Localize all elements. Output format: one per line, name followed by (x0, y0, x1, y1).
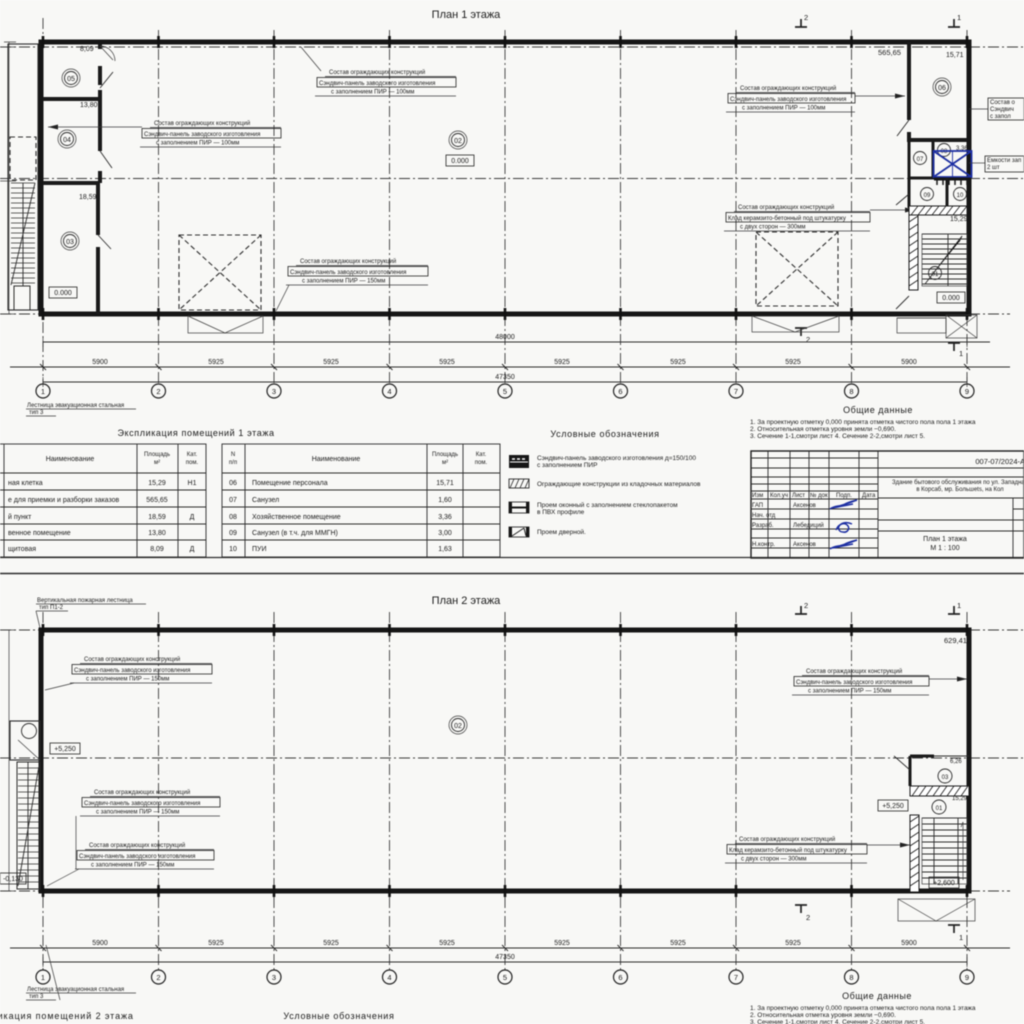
svg-text:Сэндвич-панель заводского изго: Сэндвич-панель заводского изготовления (74, 668, 190, 674)
svg-text:е для приемки и разборки заказ: е для приемки и разборки заказов (8, 496, 120, 504)
svg-text:+5,250: +5,250 (882, 803, 904, 810)
svg-text:N: N (231, 452, 235, 458)
svg-text:Состав ограждающих конструкций: Состав ограждающих конструкций (300, 258, 396, 265)
svg-text:18,59: 18,59 (148, 514, 166, 521)
svg-text:с заполнением ПИР — 150мм: с заполнением ПИР — 150мм (96, 810, 179, 816)
svg-text:5925: 5925 (439, 359, 455, 366)
svg-text:1: 1 (41, 387, 45, 396)
svg-text:5900: 5900 (92, 940, 108, 947)
svg-text:7: 7 (734, 387, 738, 396)
svg-text:8: 8 (849, 387, 853, 396)
svg-text:565,65: 565,65 (878, 48, 901, 57)
svg-text:Площадь: Площадь (144, 452, 170, 458)
svg-text:Состав ограждающих конструкций: Состав ограждающих конструкций (329, 69, 425, 76)
svg-text:Общие данные: Общие данные (842, 991, 912, 1001)
svg-text:09: 09 (229, 530, 237, 537)
svg-text:1,63: 1,63 (438, 546, 452, 553)
svg-text:Состав ограждающих конструкций: Состав ограждающих конструкций (739, 836, 835, 843)
svg-text:Сэндвич-панель заводского изго: Сэндвич-панель заводского изготовления д… (537, 455, 696, 462)
svg-text:м²: м² (442, 460, 448, 466)
svg-text:Сэндвич-панель заводского изго: Сэндвич-панель заводского изготовления (79, 854, 195, 860)
svg-text:3. Сечение 1-1,смотри лист 4.: 3. Сечение 1-1,смотри лист 4. Сечение 2-… (750, 433, 925, 440)
svg-text:Д: Д (190, 546, 195, 553)
svg-text:Сэндвич-панель заводского изго: Сэндвич-панель заводского изготовления (144, 132, 260, 138)
svg-text:й пункт: й пункт (8, 513, 32, 521)
svg-text:Аксенов: Аксенов (793, 542, 816, 548)
svg-text:4: 4 (387, 973, 391, 982)
svg-text:565,65: 565,65 (146, 497, 168, 504)
svg-text:5925: 5925 (208, 940, 224, 947)
svg-text:3,36: 3,36 (438, 514, 452, 521)
svg-text:Состав ограждающих конструкций: Состав ограждающих конструкций (154, 120, 250, 127)
svg-text:07: 07 (229, 497, 237, 504)
svg-text:Состав ограждающих конструкций: Состав ограждающих конструкций (89, 842, 185, 849)
svg-text:Состав ограждающих конструкций: Состав ограждающих конструкций (806, 668, 902, 675)
svg-text:10: 10 (957, 193, 964, 199)
svg-text:02: 02 (454, 138, 462, 145)
svg-text:Д: Д (190, 514, 195, 521)
svg-text:пом.: пом. (475, 460, 488, 466)
svg-text:Клад керамзито-бетонный под шт: Клад керамзито-бетонный под штукатурку (728, 215, 846, 222)
svg-text:7: 7 (734, 973, 738, 982)
svg-text:1: 1 (41, 973, 45, 982)
svg-text:с запол: с запол (990, 114, 1011, 120)
svg-text:Ограждающие конструкции из кла: Ограждающие конструкции из кладочных мат… (537, 481, 701, 488)
svg-text:с заполнением ПИР — 150мм: с заполнением ПИР — 150мм (808, 689, 891, 695)
svg-text:ГАП: ГАП (752, 503, 763, 509)
svg-text:2. Относительная отметка уров: 2. Относительная отметка уровня земли −0… (750, 1012, 896, 1019)
svg-text:Экспликация помещений 2 этажа: Экспликация помещений 2 этажа (0, 1011, 134, 1021)
svg-text:6: 6 (618, 387, 622, 396)
svg-text:Сэндвич-панель заводского изго: Сэндвич-панель заводского изготовления (730, 97, 846, 103)
svg-text:03: 03 (66, 239, 74, 246)
svg-text:Лестница эвакуационная стальна: Лестница эвакуационная стальная (27, 987, 124, 993)
svg-text:Помещение персонала: Помещение персонала (252, 480, 328, 487)
svg-text:5925: 5925 (208, 359, 224, 366)
svg-text:03: 03 (942, 775, 949, 781)
svg-text:1: 1 (959, 349, 963, 358)
svg-text:с заполнением ПИР — 150мм: с заполнением ПИР — 150мм (86, 677, 169, 683)
svg-text:План 1 этажа: План 1 этажа (923, 536, 967, 543)
svg-text:0.000: 0.000 (54, 290, 72, 297)
svg-text:01: 01 (936, 806, 943, 812)
svg-text:2: 2 (806, 913, 810, 922)
svg-text:Лебедиций: Лебедиций (793, 522, 824, 529)
svg-text:5: 5 (503, 387, 507, 396)
svg-text:Нач. отд: Нач. отд (752, 513, 776, 519)
svg-text:15,29: 15,29 (148, 480, 166, 487)
svg-text:Аксенов: Аксенов (793, 503, 816, 509)
svg-text:с заполнением ПИР — 100мм: с заполнением ПИР — 100мм (331, 90, 414, 96)
svg-text:Клад керамзито-бетонный под шт: Клад керамзито-бетонный под штукатурку (729, 847, 847, 854)
svg-text:Лист: Лист (792, 493, 805, 499)
svg-text:5925: 5925 (554, 940, 570, 947)
svg-text:Экспликация помещений 1 этажа: Экспликация помещений 1 этажа (117, 428, 274, 438)
svg-text:Изм: Изм (752, 493, 763, 499)
svg-text:5925: 5925 (785, 940, 801, 947)
svg-text:с двух сторон — 300мм: с двух сторон — 300мм (740, 225, 806, 231)
svg-text:5900: 5900 (901, 359, 917, 366)
svg-text:2: 2 (156, 973, 160, 982)
svg-text:ПУИ: ПУИ (252, 546, 267, 553)
svg-text:Наименование: Наименование (46, 456, 95, 463)
svg-text:тип П1-2: тип П1-2 (39, 605, 64, 611)
svg-text:05: 05 (67, 76, 75, 83)
svg-text:1: 1 (957, 13, 961, 22)
svg-text:Состав ограждающих конструкций: Состав ограждающих конструкций (94, 789, 190, 796)
svg-text:5900: 5900 (901, 940, 917, 947)
svg-text:Н1: Н1 (188, 480, 197, 487)
svg-text:Проем оконный с заполнением ст: Проем оконный с заполнением стеклопакето… (537, 501, 678, 509)
svg-text:08: 08 (229, 514, 237, 521)
svg-text:1. За проектную отметку 0,000: 1. За проектную отметку 0,000 принята от… (750, 419, 976, 426)
svg-text:09: 09 (924, 193, 931, 199)
svg-text:Дата: Дата (862, 493, 876, 499)
svg-text:Н.контр.: Н.контр. (752, 542, 775, 548)
svg-text:5925: 5925 (785, 359, 801, 366)
svg-text:Сэндвич-панель заводского изго: Сэндвич-панель заводского изготовления (796, 680, 912, 686)
svg-text:с заполнением ПИР — 100мм: с заполнением ПИР — 100мм (742, 106, 825, 112)
svg-text:+2,600: +2,600 (933, 880, 955, 887)
svg-text:тип 3: тип 3 (29, 994, 44, 1000)
svg-text:Сэндвич-панель заводского изго: Сэндвич-панель заводского изготовления (290, 270, 406, 276)
svg-text:4: 4 (387, 387, 391, 396)
svg-text:пом.: пом. (186, 460, 199, 466)
svg-text:18,59: 18,59 (79, 194, 97, 201)
svg-text:5925: 5925 (670, 359, 686, 366)
svg-text:Вертикальная пожарная лестница: Вертикальная пожарная лестница (37, 598, 133, 604)
svg-text:Наименование: Наименование (312, 456, 361, 463)
svg-text:48000: 48000 (495, 334, 515, 341)
svg-text:Хозяйственное помещение: Хозяйственное помещение (252, 513, 341, 521)
svg-text:Сэндвич: Сэндвич (990, 107, 1014, 113)
svg-text:в Корсаб, мр. Большеts, на Кол: в Корсаб, мр. Большеts, на Кол (916, 487, 1004, 493)
svg-text:Сэндвич-панель заводского изго: Сэндвич-панель заводского изготовления (84, 801, 200, 807)
svg-text:6,26: 6,26 (950, 759, 962, 765)
svg-text:1,60: 1,60 (438, 497, 452, 504)
svg-text:1: 1 (957, 601, 961, 610)
svg-text:5925: 5925 (439, 940, 455, 947)
svg-text:6: 6 (618, 973, 622, 982)
svg-text:13,80: 13,80 (148, 530, 166, 537)
svg-text:щитовая: щитовая (8, 546, 36, 553)
svg-text:Лестница эвакуационная стальна: Лестница эвакуационная стальная (27, 403, 124, 409)
svg-text:Емкости зап: Емкости зап (987, 158, 1021, 164)
svg-text:Здание бытового обслуживания п: Здание бытового обслуживания по ул. Запа… (892, 480, 1024, 486)
svg-text:с двух сторон — 300мм: с двух сторон — 300мм (741, 857, 807, 863)
svg-text:венное помещение: венное помещение (8, 530, 71, 537)
svg-text:1: 1 (959, 933, 963, 942)
svg-text:2: 2 (156, 387, 160, 396)
svg-text:в ПВХ профиле: в ПВХ профиле (537, 509, 585, 516)
svg-text:Разраб.: Разраб. (752, 523, 774, 529)
svg-text:8,09: 8,09 (150, 546, 164, 553)
svg-text:План 2 этажа: План 2 этажа (432, 595, 502, 607)
svg-text:М 1 : 100: М 1 : 100 (930, 545, 959, 552)
svg-text:1. За проектную отметку 0,000: 1. За проектную отметку 0,000 принята от… (750, 1005, 976, 1012)
svg-text:Условные обозначения: Условные обозначения (550, 429, 659, 439)
svg-text:10: 10 (229, 546, 237, 553)
svg-text:0.000: 0.000 (942, 295, 960, 302)
svg-text:3: 3 (272, 387, 276, 396)
svg-text:0.000: 0.000 (451, 158, 469, 165)
svg-text:2: 2 (804, 13, 808, 22)
svg-text:Состав ограждающих конструкций: Состав ограждающих конструкций (84, 656, 180, 663)
svg-text:3: 3 (272, 973, 276, 982)
svg-text:+5,250: +5,250 (54, 746, 76, 753)
svg-text:м²: м² (154, 460, 160, 466)
svg-text:Подп.: Подп. (836, 493, 852, 499)
svg-text:Санузел (в т.ч. для ММГН): Санузел (в т.ч. для ММГН) (252, 530, 338, 537)
svg-text:47350: 47350 (495, 954, 515, 961)
svg-text:02: 02 (454, 723, 462, 730)
svg-text:15,29: 15,29 (952, 796, 968, 802)
svg-text:с заполнением ПИР — 100мм: с заполнением ПИР — 100мм (156, 141, 239, 147)
svg-text:629,41: 629,41 (944, 636, 967, 645)
svg-text:8: 8 (849, 973, 853, 982)
svg-text:Проем дверной.: Проем дверной. (537, 528, 586, 536)
svg-text:тип 3: тип 3 (29, 410, 44, 416)
svg-text:3. Сечение 1-1,смотри лист 4.: 3. Сечение 1-1,смотри лист 4. Сечение 2-… (750, 1019, 925, 1024)
svg-text:5925: 5925 (323, 359, 339, 366)
svg-text:Состав ограждающих конструкций: Состав ограждающих конструкций (738, 204, 834, 211)
svg-text:5925: 5925 (554, 359, 570, 366)
svg-text:007-07/2024-АР: 007-07/2024-АР (975, 457, 1024, 466)
svg-text:Условные обозначения: Условные обозначения (283, 1011, 394, 1021)
svg-text:07: 07 (917, 157, 924, 163)
svg-text:Кат.: Кат. (476, 452, 487, 458)
svg-text:2: 2 (806, 335, 810, 344)
svg-text:ная клетка: ная клетка (8, 480, 43, 487)
svg-text:15,71: 15,71 (436, 480, 454, 487)
svg-text:Площадь: Площадь (432, 452, 458, 458)
svg-text:Общие данные: Общие данные (843, 405, 913, 415)
svg-text:2: 2 (804, 601, 808, 610)
svg-text:06: 06 (938, 85, 946, 92)
svg-text:2 шт: 2 шт (987, 165, 1000, 171)
svg-text:9: 9 (965, 973, 969, 982)
svg-text:с заполнением ПИР: с заполнением ПИР (537, 462, 597, 469)
svg-text:2. Относительная отметка уров: 2. Относительная отметка уровня земли −0… (750, 426, 896, 433)
svg-text:8,09: 8,09 (80, 46, 94, 53)
svg-text:5925: 5925 (323, 940, 339, 947)
svg-text:5900: 5900 (92, 359, 108, 366)
svg-text:Состав о: Состав о (990, 100, 1016, 106)
svg-text:5: 5 (503, 973, 507, 982)
svg-text:Сэндвич-панель заводского изго: Сэндвич-панель заводского изготовления (319, 81, 435, 87)
svg-text:01: 01 (932, 272, 939, 278)
svg-text:15,29: 15,29 (950, 216, 968, 223)
svg-text:13,80: 13,80 (80, 102, 98, 109)
svg-text:с заполнением ПИР — 150мм: с заполнением ПИР — 150мм (91, 863, 174, 869)
svg-text:п/п: п/п (229, 460, 237, 466)
svg-text:Кат.: Кат. (187, 452, 198, 458)
svg-text:№ док: № док (810, 492, 828, 499)
svg-text:План 1 этажа: План 1 этажа (432, 9, 502, 21)
svg-text:-0,130: -0,130 (3, 876, 23, 883)
svg-text:3,00: 3,00 (438, 530, 452, 537)
svg-text:9: 9 (965, 387, 969, 396)
svg-text:08: 08 (941, 149, 948, 155)
svg-text:Состав ограждающих конструкций: Состав ограждающих конструкций (740, 85, 836, 92)
svg-text:04: 04 (63, 137, 71, 144)
svg-text:47350: 47350 (495, 374, 515, 381)
svg-text:5925: 5925 (670, 940, 686, 947)
svg-text:Санузел: Санузел (252, 497, 279, 504)
svg-text:с заполнением ПИР — 150мм: с заполнением ПИР — 150мм (302, 279, 385, 285)
svg-text:Кол.уч: Кол.уч (770, 493, 788, 499)
svg-text:06: 06 (229, 480, 237, 487)
svg-text:15,71: 15,71 (946, 52, 964, 59)
